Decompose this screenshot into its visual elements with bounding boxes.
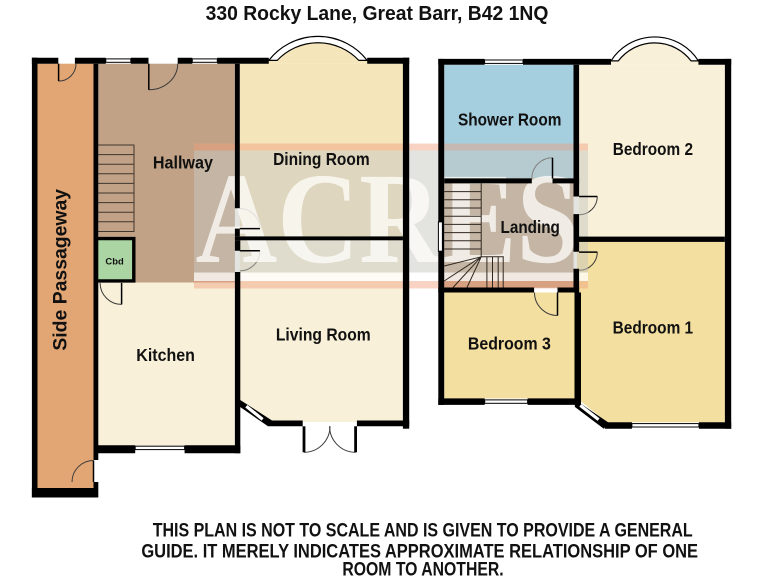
svg-text:Bedroom 3: Bedroom 3 <box>468 334 551 354</box>
svg-text:Cbd: Cbd <box>105 256 124 267</box>
svg-text:THIS PLAN IS NOT TO SCALE AND: THIS PLAN IS NOT TO SCALE AND IS GIVEN T… <box>153 521 693 542</box>
svg-text:Dining Room: Dining Room <box>273 149 370 169</box>
svg-text:Hallway: Hallway <box>153 152 213 172</box>
svg-text:Kitchen: Kitchen <box>136 345 195 365</box>
svg-text:Shower Room: Shower Room <box>458 109 561 129</box>
svg-text:Landing: Landing <box>501 217 560 237</box>
svg-text:ROOM TO ANOTHER.: ROOM TO ANOTHER. <box>342 560 503 576</box>
svg-text:Side Passageway: Side Passageway <box>50 189 72 351</box>
svg-text:Bedroom 1: Bedroom 1 <box>613 318 694 338</box>
svg-text:Living Room: Living Room <box>276 325 371 345</box>
svg-text:330 Rocky Lane, Great Barr, B4: 330 Rocky Lane, Great Barr, B42 1NQ <box>206 2 549 25</box>
svg-text:Bedroom 2: Bedroom 2 <box>613 139 693 159</box>
